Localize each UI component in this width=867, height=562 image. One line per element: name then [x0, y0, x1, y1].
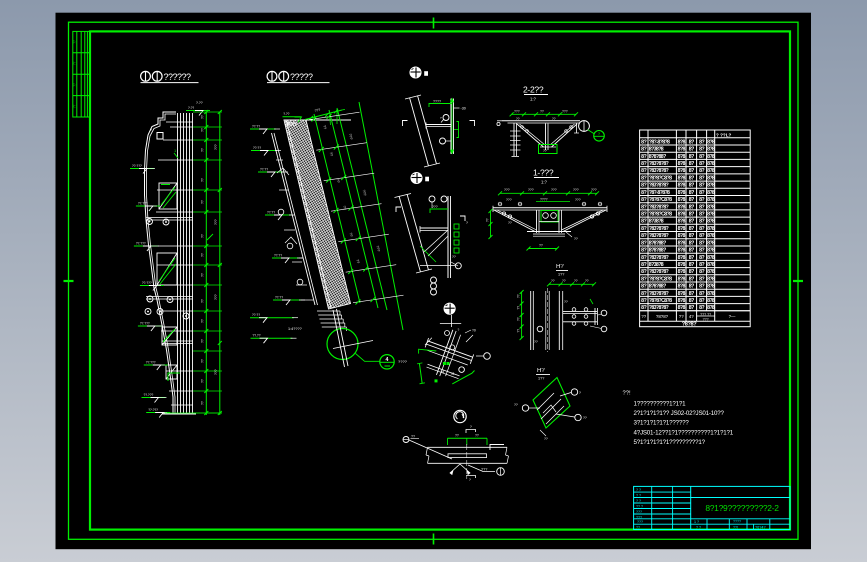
- svg-text:??.??: ??.??: [253, 334, 261, 338]
- svg-text:8?: 8?: [689, 212, 694, 218]
- svg-text:8?8: 8?8: [678, 154, 686, 160]
- svg-text:??: ??: [636, 525, 640, 529]
- svg-text:8?: 8?: [641, 240, 646, 246]
- svg-text:??: ??: [72, 83, 76, 87]
- svg-text:??: ??: [201, 379, 205, 383]
- svg-text:??.???: ??.???: [138, 202, 148, 206]
- svg-text:??: ??: [540, 110, 544, 114]
- svg-text:???: ???: [636, 510, 642, 514]
- svg-text:8?: 8?: [699, 276, 704, 282]
- svg-text:?8?8?C8?8: ?8?8?C8?8: [649, 212, 672, 218]
- svg-text:??.???: ??.???: [140, 322, 150, 326]
- svg-text:8?: 8?: [689, 233, 694, 239]
- svg-text:?: ?: [458, 328, 460, 332]
- svg-text:?83?8?8?: ?83?8?8?: [649, 305, 669, 311]
- svg-text:1-???: 1-???: [533, 168, 554, 178]
- svg-text:8?8: 8?8: [707, 291, 715, 297]
- svg-text:??!: ??!: [733, 525, 738, 529]
- svg-text:?8?8?: ?8?8?: [682, 322, 697, 328]
- svg-text:8?: 8?: [689, 204, 694, 210]
- svg-text:??.??: ??.??: [260, 168, 268, 172]
- svg-text:8?: 8?: [641, 212, 646, 218]
- svg-text:8?8: 8?8: [707, 233, 715, 239]
- svg-text:4: 4: [386, 357, 389, 363]
- svg-text:?????: ?????: [290, 72, 313, 82]
- svg-text:??: ??: [508, 221, 512, 225]
- svg-text:??: ??: [641, 314, 646, 319]
- svg-text:8?: 8?: [699, 262, 704, 268]
- svg-text:8?8: 8?8: [678, 298, 686, 304]
- svg-text:? ?: ? ?: [636, 494, 641, 498]
- svg-text:8?: 8?: [699, 255, 704, 261]
- svg-text:??: ??: [564, 300, 568, 304]
- svg-text:8?: 8?: [641, 276, 646, 282]
- svg-text:??: ??: [201, 253, 205, 257]
- svg-text:??.???: ??.???: [146, 361, 156, 365]
- svg-text:??: ??: [201, 319, 205, 323]
- svg-text:??: ??: [517, 317, 521, 321]
- svg-text:?83?8?8?: ?83?8?8?: [649, 269, 669, 275]
- svg-text:8?: 8?: [641, 183, 646, 189]
- svg-text:????: ????: [540, 198, 548, 202]
- svg-text:8?: 8?: [641, 255, 646, 261]
- svg-text:8?: 8?: [699, 226, 704, 232]
- svg-text:??.??: ??.??: [252, 313, 260, 317]
- svg-text:8?: 8?: [699, 168, 704, 174]
- svg-text:1??????????1?1?1: 1??????????1?1?1: [634, 401, 687, 408]
- svg-text:1??: 1??: [538, 377, 544, 381]
- svg-text:8?: 8?: [689, 255, 694, 261]
- svg-text:8?: 8?: [699, 240, 704, 246]
- svg-text:??????: ??????: [164, 72, 192, 82]
- svg-text:8?1?9?????????2-2: 8?1?9?????????2-2: [705, 503, 779, 513]
- svg-text:??: ??: [562, 279, 566, 283]
- svg-text:8?8: 8?8: [707, 262, 715, 268]
- svg-text:8?: 8?: [699, 284, 704, 290]
- svg-text:???: ???: [573, 188, 579, 192]
- svg-text:8?8: 8?8: [707, 168, 715, 174]
- svg-text:8?8?88?: 8?8?88?: [649, 284, 666, 290]
- svg-text:8?8: 8?8: [678, 262, 686, 268]
- svg-text:8?: 8?: [699, 204, 704, 210]
- svg-text:8?8: 8?8: [678, 219, 686, 225]
- svg-text:8?: 8?: [641, 147, 646, 153]
- svg-text:8?: 8?: [699, 305, 704, 311]
- svg-text:8?: 8?: [689, 190, 694, 196]
- svg-text:8?: 8?: [699, 233, 704, 239]
- svg-text:8?8: 8?8: [707, 190, 715, 196]
- svg-text:??: ??: [574, 237, 578, 241]
- svg-text:???: ???: [506, 198, 512, 202]
- svg-text:8?8: 8?8: [707, 204, 715, 210]
- svg-text:8?: 8?: [689, 154, 694, 160]
- svg-text:8?8: 8?8: [707, 284, 715, 290]
- svg-text:8?: 8?: [689, 161, 694, 167]
- svg-text:??: ??: [411, 435, 415, 439]
- svg-text:8?8: 8?8: [707, 183, 715, 189]
- svg-text:1:4????: 1:4????: [288, 327, 302, 331]
- svg-text:8?: 8?: [689, 298, 694, 304]
- svg-text:??: ??: [72, 40, 76, 44]
- svg-text:8?8: 8?8: [678, 161, 686, 167]
- svg-text:8?: 8?: [641, 190, 646, 196]
- svg-text:8?8: 8?8: [678, 240, 686, 246]
- svg-text:5?1?1?1?1?1?????????1?: 5?1?1?1?1?1?????????1?: [634, 439, 706, 446]
- svg-text:8?38?8: 8?38?8: [649, 262, 664, 268]
- svg-text:8?: 8?: [689, 248, 694, 254]
- svg-text:???: ???: [562, 110, 568, 114]
- svg-text:8?: 8?: [699, 139, 704, 145]
- svg-text:8?8: 8?8: [678, 255, 686, 261]
- svg-text:? ??L?: ? ??L?: [716, 133, 732, 138]
- svg-text:? ?: ? ?: [696, 525, 701, 529]
- svg-text:?0?4?: ?0?4?: [755, 525, 766, 529]
- svg-text:1 ?: 1 ?: [694, 520, 699, 524]
- svg-text:8?8: 8?8: [678, 176, 686, 182]
- svg-text:??.??: ??.??: [267, 211, 275, 215]
- svg-text:???: ???: [432, 205, 438, 209]
- svg-text:8?8: 8?8: [707, 269, 715, 275]
- svg-text:???: ???: [703, 318, 709, 322]
- svg-text:???: ???: [591, 188, 597, 192]
- svg-text:8?38?8: 8?38?8: [649, 147, 664, 153]
- svg-text:8?: 8?: [699, 291, 704, 297]
- svg-text:?83?8?8?: ?83?8?8?: [649, 226, 669, 232]
- svg-text:8?8: 8?8: [678, 291, 686, 297]
- svg-text:??: ??: [201, 299, 205, 303]
- svg-text:8?: 8?: [689, 197, 694, 203]
- svg-text:???: ???: [528, 188, 534, 192]
- svg-text:??: ??: [201, 273, 205, 277]
- svg-text:?? ?: ?? ?: [636, 505, 643, 509]
- svg-text:1:?: 1:?: [541, 180, 547, 185]
- svg-text:8?: 8?: [641, 197, 646, 203]
- svg-text:?8: ?8: [451, 372, 455, 376]
- svg-text:8?8: 8?8: [678, 305, 686, 311]
- svg-text:??: ??: [551, 279, 555, 283]
- svg-text:8?: 8?: [689, 226, 694, 232]
- svg-text:8?8: 8?8: [707, 255, 715, 261]
- svg-text:8?: 8?: [689, 291, 694, 297]
- svg-text:8?8: 8?8: [678, 276, 686, 282]
- svg-text:??.???: ??.???: [132, 164, 142, 168]
- svg-text:8?8: 8?8: [678, 212, 686, 218]
- svg-text:???: ???: [575, 198, 581, 202]
- svg-text:8?8?88?: 8?8?88?: [649, 154, 666, 160]
- svg-text:??: ??: [201, 200, 205, 204]
- svg-text:??.???: ??.???: [136, 242, 146, 246]
- svg-text:??: ??: [452, 255, 456, 259]
- svg-text:??: ??: [534, 340, 538, 344]
- svg-text:??: ??: [544, 437, 548, 441]
- svg-text:-30: -30: [461, 107, 466, 111]
- svg-text:8?8: 8?8: [707, 139, 715, 145]
- svg-text:??: ??: [201, 401, 205, 405]
- svg-text:8?: 8?: [699, 219, 704, 225]
- svg-text:??.??: ??.??: [253, 146, 261, 150]
- svg-text:8?8: 8?8: [707, 147, 715, 153]
- svg-text:8?: 8?: [689, 276, 694, 282]
- svg-text:??? ??: ??? ??: [700, 312, 711, 316]
- svg-text:8?: 8?: [699, 269, 704, 275]
- svg-text:8?: 8?: [699, 298, 704, 304]
- svg-text:?8?8?C8?8: ?8?8?C8?8: [649, 197, 672, 203]
- svg-text:8?8: 8?8: [707, 276, 715, 282]
- svg-text:?83?8?8?: ?83?8?8?: [649, 204, 669, 210]
- svg-text:???: ???: [504, 188, 510, 192]
- svg-text:8?8: 8?8: [707, 197, 715, 203]
- svg-text:??: ??: [72, 105, 76, 109]
- svg-text:?4: ?4: [441, 370, 445, 374]
- svg-text:8?: 8?: [699, 176, 704, 182]
- svg-text:?.??: ?.??: [196, 101, 203, 105]
- svg-text:?.??: ?.??: [188, 106, 194, 110]
- svg-text:?8?8?C8?8: ?8?8?C8?8: [649, 298, 672, 304]
- svg-text:??: ??: [201, 115, 205, 119]
- svg-text:??: ??: [583, 416, 587, 420]
- svg-text:8?: 8?: [699, 248, 704, 254]
- svg-text:8?: 8?: [641, 168, 646, 174]
- svg-text:?83?8?8?: ?83?8?8?: [649, 291, 669, 297]
- svg-text:??: ??: [455, 434, 459, 438]
- svg-text:8?: 8?: [641, 154, 646, 160]
- svg-text:8?: 8?: [641, 139, 646, 145]
- svg-text:??: ??: [201, 339, 205, 343]
- svg-text:??: ??: [517, 329, 521, 333]
- svg-text:3?1?1?1?1?1??????: 3?1?1?1?1?1??????: [634, 420, 690, 427]
- svg-text:8?: 8?: [641, 226, 646, 232]
- svg-text:8?8: 8?8: [678, 183, 686, 189]
- svg-text:??: ??: [201, 148, 205, 152]
- svg-text:?8?-8?8?8: ?8?-8?8?8: [649, 190, 670, 196]
- svg-text:1:?: 1:?: [530, 97, 536, 102]
- svg-text:??.??: ??.??: [275, 296, 283, 300]
- svg-text:8?: 8?: [689, 147, 694, 153]
- svg-text:8?8: 8?8: [707, 212, 715, 218]
- svg-text:??: ??: [543, 149, 547, 153]
- svg-text:8?: 8?: [689, 305, 694, 311]
- svg-text:4?: 4?: [689, 314, 694, 319]
- svg-text:8?: 8?: [699, 161, 704, 167]
- svg-text:8?8: 8?8: [707, 298, 715, 304]
- svg-text:??: ??: [574, 279, 578, 283]
- svg-text:??: ??: [201, 178, 205, 182]
- svg-text:??.???: ??.???: [148, 408, 158, 412]
- svg-text:???: ???: [551, 188, 557, 192]
- svg-text:8?8?88?: 8?8?88?: [649, 240, 666, 246]
- svg-text:8?8: 8?8: [707, 240, 715, 246]
- svg-text:8?8: 8?8: [678, 284, 686, 290]
- svg-text:8?8: 8?8: [707, 219, 715, 225]
- svg-text:?—: ?—: [729, 314, 736, 319]
- svg-text:8?: 8?: [641, 262, 646, 268]
- svg-text:?8?8?C8?8: ?8?8?C8?8: [649, 276, 672, 282]
- svg-text:??: ??: [72, 62, 76, 66]
- svg-text:8?8: 8?8: [678, 269, 686, 275]
- svg-text:?8?8?C8?8: ?8?8?C8?8: [649, 176, 672, 182]
- svg-text:8?: 8?: [699, 154, 704, 160]
- svg-text:? ?: ? ?: [636, 488, 641, 492]
- svg-text:8?: 8?: [699, 183, 704, 189]
- svg-text:8?: 8?: [641, 291, 646, 297]
- svg-text:2-2??: 2-2??: [523, 85, 544, 95]
- svg-text:???: ???: [214, 144, 218, 150]
- svg-text:8?: 8?: [699, 147, 704, 153]
- svg-text:?8?8?: ?8?8?: [656, 314, 669, 319]
- svg-text:8?: 8?: [641, 305, 646, 311]
- svg-text:2?1?1?1?1?? JS02-02?JS01-10??: 2?1?1?1?1?? JS02-02?JS01-10??: [634, 410, 725, 417]
- svg-text:8?: 8?: [641, 219, 646, 225]
- svg-text:??: ??: [679, 314, 684, 319]
- svg-text:???: ???: [214, 369, 218, 375]
- svg-text:8?8: 8?8: [707, 154, 715, 160]
- svg-text:???: ???: [214, 219, 218, 225]
- svg-text:8?: 8?: [689, 183, 694, 189]
- svg-text:????: ????: [733, 520, 741, 524]
- svg-text:8?: 8?: [641, 248, 646, 254]
- svg-text:????: ????: [398, 359, 408, 364]
- svg-text:??.???: ??.???: [142, 281, 152, 285]
- svg-text:??: ??: [486, 218, 490, 222]
- svg-text:8?8: 8?8: [678, 204, 686, 210]
- svg-text:??: ??: [517, 294, 521, 298]
- svg-text:???: ???: [214, 294, 218, 300]
- svg-text:8?: 8?: [689, 269, 694, 275]
- svg-text:8?: 8?: [641, 233, 646, 239]
- svg-text:8?8: 8?8: [678, 139, 686, 145]
- svg-text:8?8: 8?8: [678, 233, 686, 239]
- svg-text:?: ?: [579, 391, 581, 395]
- svg-text:8?: 8?: [689, 176, 694, 182]
- svg-text:??.???: ??.???: [144, 393, 154, 397]
- svg-text:H?: H?: [556, 264, 564, 270]
- svg-text:8?8: 8?8: [707, 176, 715, 182]
- svg-text:8?8: 8?8: [678, 168, 686, 174]
- svg-text:8?8: 8?8: [678, 190, 686, 196]
- svg-text:?83?8?8?: ?83?8?8?: [649, 161, 669, 167]
- svg-text:8?8: 8?8: [707, 161, 715, 167]
- svg-text:8?: 8?: [689, 219, 694, 225]
- svg-text:?83?8?8?: ?83?8?8?: [649, 183, 669, 189]
- svg-text:??: ??: [585, 279, 589, 283]
- svg-text:8?: 8?: [699, 212, 704, 218]
- svg-text:???: ???: [481, 468, 487, 472]
- svg-text:8?: 8?: [689, 240, 694, 246]
- svg-text:?: ?: [469, 478, 471, 482]
- svg-text:8?: 8?: [641, 298, 646, 304]
- svg-text:8?: 8?: [689, 262, 694, 268]
- svg-text:?.??: ?.??: [283, 112, 289, 116]
- svg-text:? ?: ? ?: [636, 499, 641, 503]
- svg-text:??: ??: [514, 403, 518, 407]
- svg-text:???: ???: [636, 516, 642, 520]
- svg-text:8?: 8?: [641, 284, 646, 290]
- svg-text:8?8: 8?8: [707, 248, 715, 254]
- svg-text:??.??: ??.??: [252, 125, 260, 129]
- svg-text:?: ?: [150, 128, 152, 132]
- svg-text:8?: 8?: [641, 161, 646, 167]
- svg-text:8?: 8?: [641, 269, 646, 275]
- svg-text:8?8: 8?8: [678, 147, 686, 153]
- svg-text:??.??: ??.??: [274, 254, 282, 258]
- svg-text:??!: ??!: [623, 391, 631, 397]
- svg-text:8?8?88?: 8?8?88?: [649, 248, 666, 254]
- svg-text:8?8: 8?8: [707, 226, 715, 232]
- svg-text:H?: H?: [537, 368, 545, 374]
- svg-text:1??: 1??: [558, 273, 564, 277]
- svg-text:??: ??: [201, 234, 205, 238]
- svg-text:8?: 8?: [699, 190, 704, 196]
- svg-text:?83?8?8?: ?83?8?8?: [649, 168, 669, 174]
- svg-text:?: ?: [470, 425, 472, 429]
- svg-text:4?JS01-12??1?1??????????1?1?1?: 4?JS01-12??1?1??????????1?1?1?1: [634, 429, 734, 436]
- svg-text:????: ????: [433, 100, 441, 104]
- svg-text:?: ?: [466, 221, 468, 225]
- svg-text:8?8: 8?8: [707, 305, 715, 311]
- svg-text:8?: 8?: [699, 197, 704, 203]
- svg-text:???: ???: [514, 110, 520, 114]
- svg-text:??: ??: [201, 359, 205, 363]
- svg-text:8?: 8?: [689, 168, 694, 174]
- svg-text:?83?8?8?: ?83?8?8?: [649, 255, 669, 261]
- svg-text:8?38?8: 8?38?8: [649, 219, 664, 225]
- svg-text:???: ???: [637, 520, 643, 524]
- svg-text:??: ??: [475, 434, 479, 438]
- svg-text:8?8: 8?8: [678, 226, 686, 232]
- svg-text:??: ??: [201, 128, 205, 132]
- svg-text:??: ??: [517, 306, 521, 310]
- svg-text:?8?-8?8?8: ?8?-8?8?8: [649, 139, 670, 145]
- svg-text:??: ??: [539, 244, 543, 248]
- svg-text:8?8: 8?8: [678, 248, 686, 254]
- svg-text:?83?8?8?: ?83?8?8?: [649, 233, 669, 239]
- svg-text:8?8: 8?8: [678, 197, 686, 203]
- svg-text:8?: 8?: [689, 139, 694, 145]
- svg-text:?0: ?0: [472, 329, 476, 333]
- svg-text:8?: 8?: [641, 204, 646, 210]
- svg-text:8?: 8?: [689, 284, 694, 290]
- svg-text:8?: 8?: [641, 176, 646, 182]
